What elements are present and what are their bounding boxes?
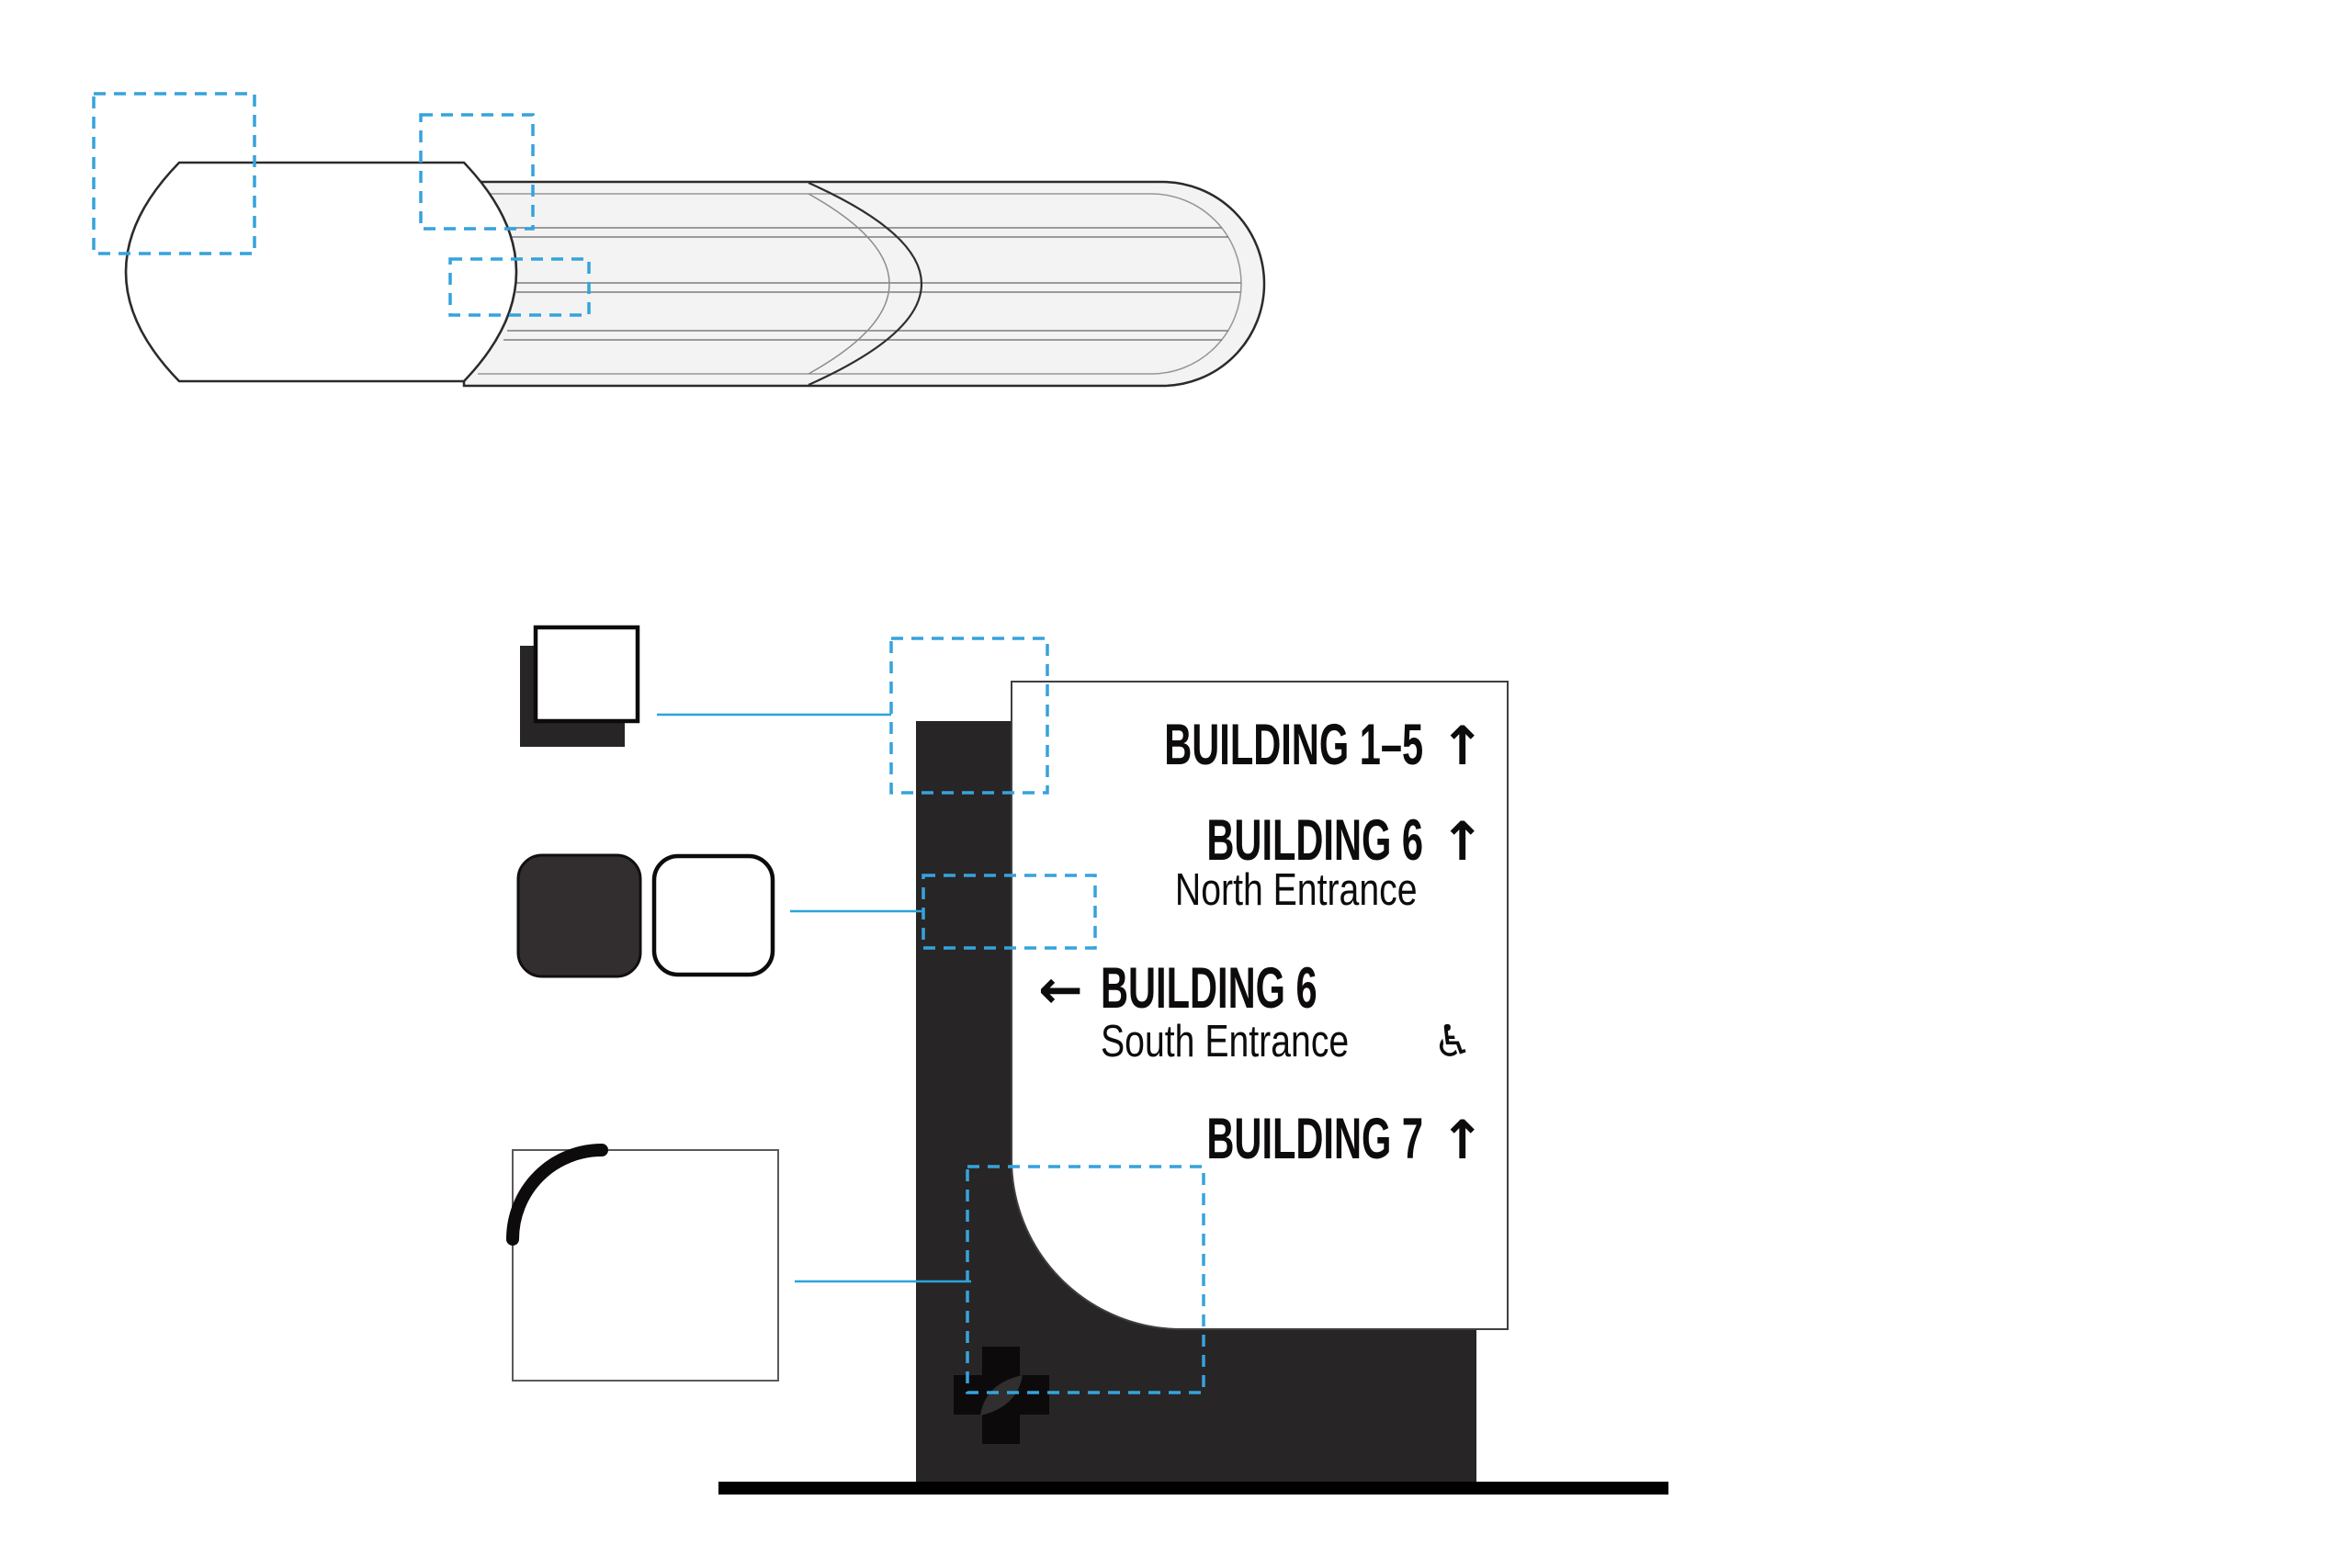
- sign-row-building-1-5: BUILDING 1–5 ↑: [1012, 716, 1485, 774]
- sign-label: BUILDING 1–5: [1164, 716, 1423, 774]
- detail-rounded-squares: [518, 855, 773, 976]
- detail-dark-rounded-square: [518, 855, 640, 976]
- detail-offset-squares: [520, 627, 638, 747]
- sign-sublabel: South Entrance: [1101, 1020, 1349, 1065]
- sign-row-building-7: BUILDING 7 ↑: [1012, 1111, 1485, 1168]
- up-arrow-icon: ↑: [1440, 719, 1485, 773]
- detail-corner-radius: [513, 1150, 778, 1381]
- up-arrow-icon: ↑: [1440, 1113, 1485, 1167]
- sign-panel-text: BUILDING 1–5 ↑ BUILDING 6 ↑ North Entran…: [1012, 682, 1508, 1329]
- sign-label: BUILDING 7: [1207, 1111, 1424, 1168]
- sign-row-building-6-north: BUILDING 6 ↑: [1012, 812, 1485, 870]
- wayfinding-signage-diagram: BUILDING 1–5 ↑ BUILDING 6 ↑ North Entran…: [0, 0, 2352, 1568]
- sign-label: BUILDING 6: [1207, 812, 1424, 870]
- sign-sublabel: North Entrance: [1175, 868, 1418, 913]
- sign-row-building-6-south: ← BUILDING 6: [1038, 960, 1429, 1018]
- left-arrow-icon: ←: [1038, 963, 1083, 1016]
- sign-label: BUILDING 6: [1101, 960, 1317, 1018]
- detail-white-rounded-square: [654, 856, 773, 975]
- sign-sublabel-north-entrance: North Entrance: [1012, 868, 1418, 913]
- wheelchair-accessible-icon: ♿: [1433, 1020, 1473, 1064]
- sign-sublabel-south-entrance: South Entrance ♿: [1101, 1020, 1473, 1065]
- up-arrow-icon: ↑: [1440, 815, 1485, 868]
- detail-white-square: [536, 627, 638, 721]
- detail-radius-square: [513, 1150, 778, 1381]
- ground-line: [718, 1482, 1668, 1495]
- plan-view-drawing: [94, 94, 1264, 386]
- plan-endcap: [126, 163, 516, 381]
